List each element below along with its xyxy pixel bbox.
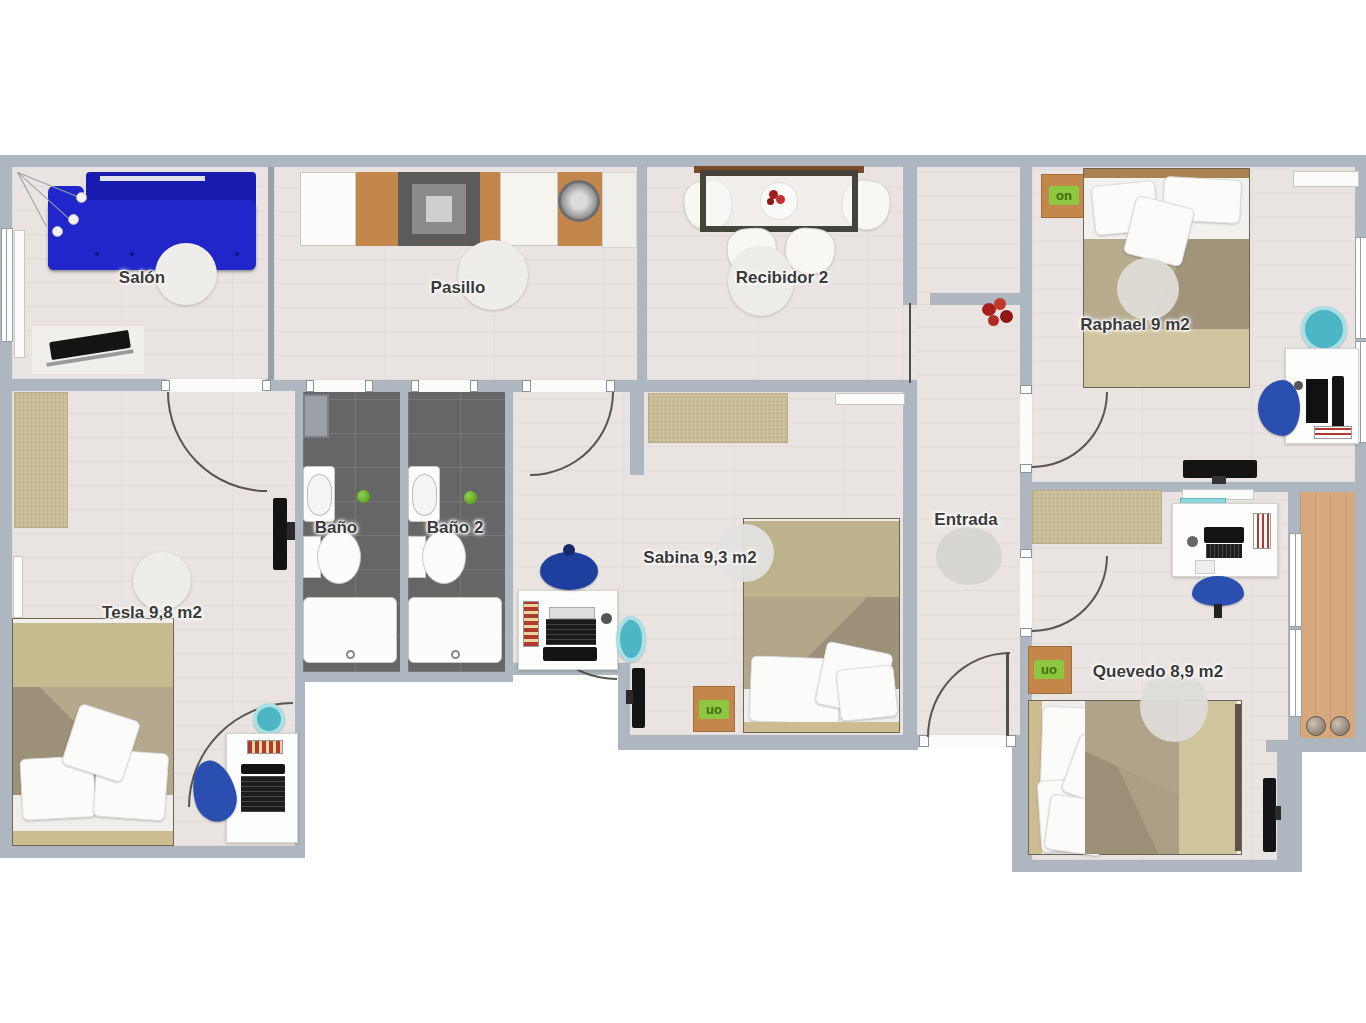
room-label-sabina: Sabina 9,3 m2 bbox=[643, 548, 756, 568]
bed-foot-band bbox=[1084, 329, 1249, 387]
tesla-bed bbox=[12, 618, 174, 846]
bano2-drain-dot bbox=[464, 491, 477, 504]
tesla-wall-tv bbox=[273, 498, 287, 570]
floor-lamp-bulb bbox=[52, 226, 63, 237]
bano-door-opening bbox=[312, 380, 367, 392]
chair-stem bbox=[1214, 604, 1222, 618]
raphael-window bbox=[1355, 237, 1366, 339]
raphael-desk-chair bbox=[1258, 380, 1300, 436]
shower-drain bbox=[346, 650, 355, 659]
door-post bbox=[1020, 464, 1032, 473]
bano-sink bbox=[303, 466, 335, 522]
salon-radiator bbox=[14, 230, 25, 358]
room-label-salon: Salón bbox=[119, 268, 165, 288]
kitchen-cabinet bbox=[300, 172, 356, 246]
laptop-keyboard bbox=[241, 776, 285, 812]
sink-basin bbox=[307, 474, 332, 516]
sabina-stool bbox=[616, 616, 646, 662]
kitchen-hood bbox=[398, 172, 480, 246]
balcony-floor bbox=[1300, 492, 1355, 738]
door-post bbox=[606, 380, 615, 392]
kitchen-hood-top bbox=[426, 196, 452, 222]
kitchen-counter-wood bbox=[480, 172, 500, 246]
raphael-stool bbox=[1301, 306, 1347, 352]
room-label-entrada: Entrada bbox=[934, 510, 997, 530]
red-plant bbox=[994, 298, 1006, 310]
tablet bbox=[543, 647, 597, 661]
bano-drain-dot bbox=[357, 490, 370, 503]
quevedo-step-wall bbox=[1266, 740, 1288, 752]
tesla-round-table bbox=[133, 552, 191, 610]
door-post bbox=[1020, 549, 1032, 558]
bano-shower bbox=[303, 597, 397, 663]
sabina-wall-stub bbox=[630, 392, 644, 475]
corridor-floor bbox=[917, 167, 1020, 293]
door-post bbox=[522, 380, 531, 392]
pot-lid bbox=[563, 544, 575, 556]
bed-foot-board bbox=[744, 722, 899, 732]
raphael-shelf bbox=[1293, 171, 1359, 187]
quevedo-rug bbox=[1032, 490, 1162, 544]
sabina-tv-bracket bbox=[626, 690, 633, 704]
keyboard bbox=[1306, 379, 1328, 423]
sofa-button bbox=[235, 252, 239, 256]
quevedo-tv-bracket bbox=[1275, 806, 1281, 820]
corridor-stub-wall bbox=[930, 293, 1020, 305]
pasillo-round-table bbox=[458, 240, 528, 310]
sabina-blue-pot bbox=[540, 552, 598, 590]
balcony-pot bbox=[1306, 716, 1326, 736]
balcony-window bbox=[1289, 533, 1302, 627]
kitchen-counter-wood bbox=[356, 172, 400, 246]
washing-machine bbox=[558, 180, 600, 222]
brand-badge-uo: uo bbox=[699, 700, 729, 719]
brand-badge-uo2: uo bbox=[1034, 660, 1064, 679]
sabina-rug bbox=[648, 393, 788, 443]
corridor-passage bbox=[917, 293, 930, 305]
bano2-shower bbox=[408, 597, 502, 663]
kitchen-end-cabinet bbox=[602, 172, 637, 248]
room-label-pasillo: Pasillo bbox=[431, 278, 486, 298]
mouse bbox=[1187, 536, 1198, 547]
brand-badge-on: on bbox=[1049, 186, 1079, 205]
door-post bbox=[1020, 385, 1032, 394]
floor-lamp-bulb bbox=[68, 214, 79, 225]
centerpiece-flowers bbox=[767, 198, 774, 205]
laptop-screen bbox=[1204, 527, 1244, 543]
balcony-window2 bbox=[1289, 629, 1302, 717]
tesla-radiator bbox=[13, 556, 23, 618]
sofa-button bbox=[130, 252, 134, 256]
balcony-pot bbox=[1330, 716, 1350, 736]
sabina-shelf bbox=[835, 393, 905, 405]
laptop-screen bbox=[549, 607, 595, 619]
door-post bbox=[262, 380, 271, 391]
salon-pasillo-partition bbox=[268, 167, 274, 380]
entrada-round-rug bbox=[936, 527, 1002, 585]
red-plant bbox=[988, 315, 999, 326]
room-label-bano2: Baño 2 bbox=[427, 518, 484, 538]
sofa-seat bbox=[48, 200, 256, 270]
bed-khaki-band bbox=[13, 623, 173, 689]
raphael-door-opening bbox=[1020, 392, 1032, 466]
quevedo-desk bbox=[1172, 503, 1278, 577]
bano2-sink bbox=[408, 466, 440, 522]
recibidor-door-leaf bbox=[909, 303, 911, 383]
shower-drain bbox=[451, 650, 460, 659]
mouse bbox=[601, 613, 612, 624]
sabina-wall-tv bbox=[632, 668, 645, 728]
door-post bbox=[411, 380, 419, 392]
sofa-cushion-line bbox=[100, 176, 205, 181]
laptop-keyboard bbox=[546, 619, 596, 645]
book bbox=[1314, 426, 1352, 439]
laptop-keyboard bbox=[1206, 544, 1242, 558]
tesla-rug bbox=[14, 392, 68, 528]
floor-lamp-bulb bbox=[76, 192, 87, 203]
room-label-tesla: Tesla 9,8 m2 bbox=[102, 603, 202, 623]
bano2-door-opening bbox=[417, 380, 472, 392]
quevedo-bed bbox=[1028, 700, 1242, 855]
centerpiece-flowers bbox=[776, 195, 785, 204]
sabina-door-opening bbox=[528, 380, 612, 392]
floor-plan: Salón Pasillo Recibidor 2 on bbox=[0, 0, 1366, 1023]
door-post bbox=[161, 380, 170, 391]
door-post bbox=[306, 380, 314, 392]
book bbox=[1253, 513, 1271, 549]
sofa bbox=[48, 172, 256, 270]
raphael-tv-stand bbox=[1212, 476, 1226, 484]
pencil-case bbox=[247, 740, 283, 754]
monitor bbox=[1332, 376, 1344, 428]
sabina-desk bbox=[518, 590, 618, 670]
room-label-recibidor2: Recibidor 2 bbox=[736, 268, 829, 288]
tesla-tv-bracket bbox=[287, 522, 295, 540]
salon-window bbox=[1, 228, 13, 342]
room-label-raphael: Raphael 9 m2 bbox=[1080, 315, 1190, 335]
door-post bbox=[470, 380, 478, 392]
book-stack bbox=[523, 601, 539, 647]
room-label-quevedo: Quevedo 8,9 m2 bbox=[1093, 662, 1223, 682]
sofa-button bbox=[95, 252, 99, 256]
tesla-desk bbox=[226, 733, 298, 843]
bed-edge bbox=[1235, 704, 1241, 851]
door-post bbox=[1020, 628, 1032, 637]
tesla-door-opening bbox=[167, 379, 265, 392]
bano-boiler bbox=[303, 394, 329, 438]
tesla-stool bbox=[253, 703, 285, 735]
door-post bbox=[365, 380, 373, 392]
kitchen-sink-counter bbox=[500, 172, 558, 246]
paper bbox=[1195, 560, 1215, 574]
quevedo-door-opening bbox=[1020, 556, 1032, 630]
bed-foot-board bbox=[13, 831, 173, 845]
red-plant bbox=[1000, 310, 1013, 323]
laptop-screen bbox=[241, 764, 285, 774]
raphael-round-rug bbox=[1117, 258, 1179, 320]
bed-pillow bbox=[835, 664, 898, 722]
sink-basin bbox=[412, 474, 437, 516]
room-label-bano: Baño bbox=[315, 518, 358, 538]
quevedo-desk-chair bbox=[1192, 576, 1244, 606]
